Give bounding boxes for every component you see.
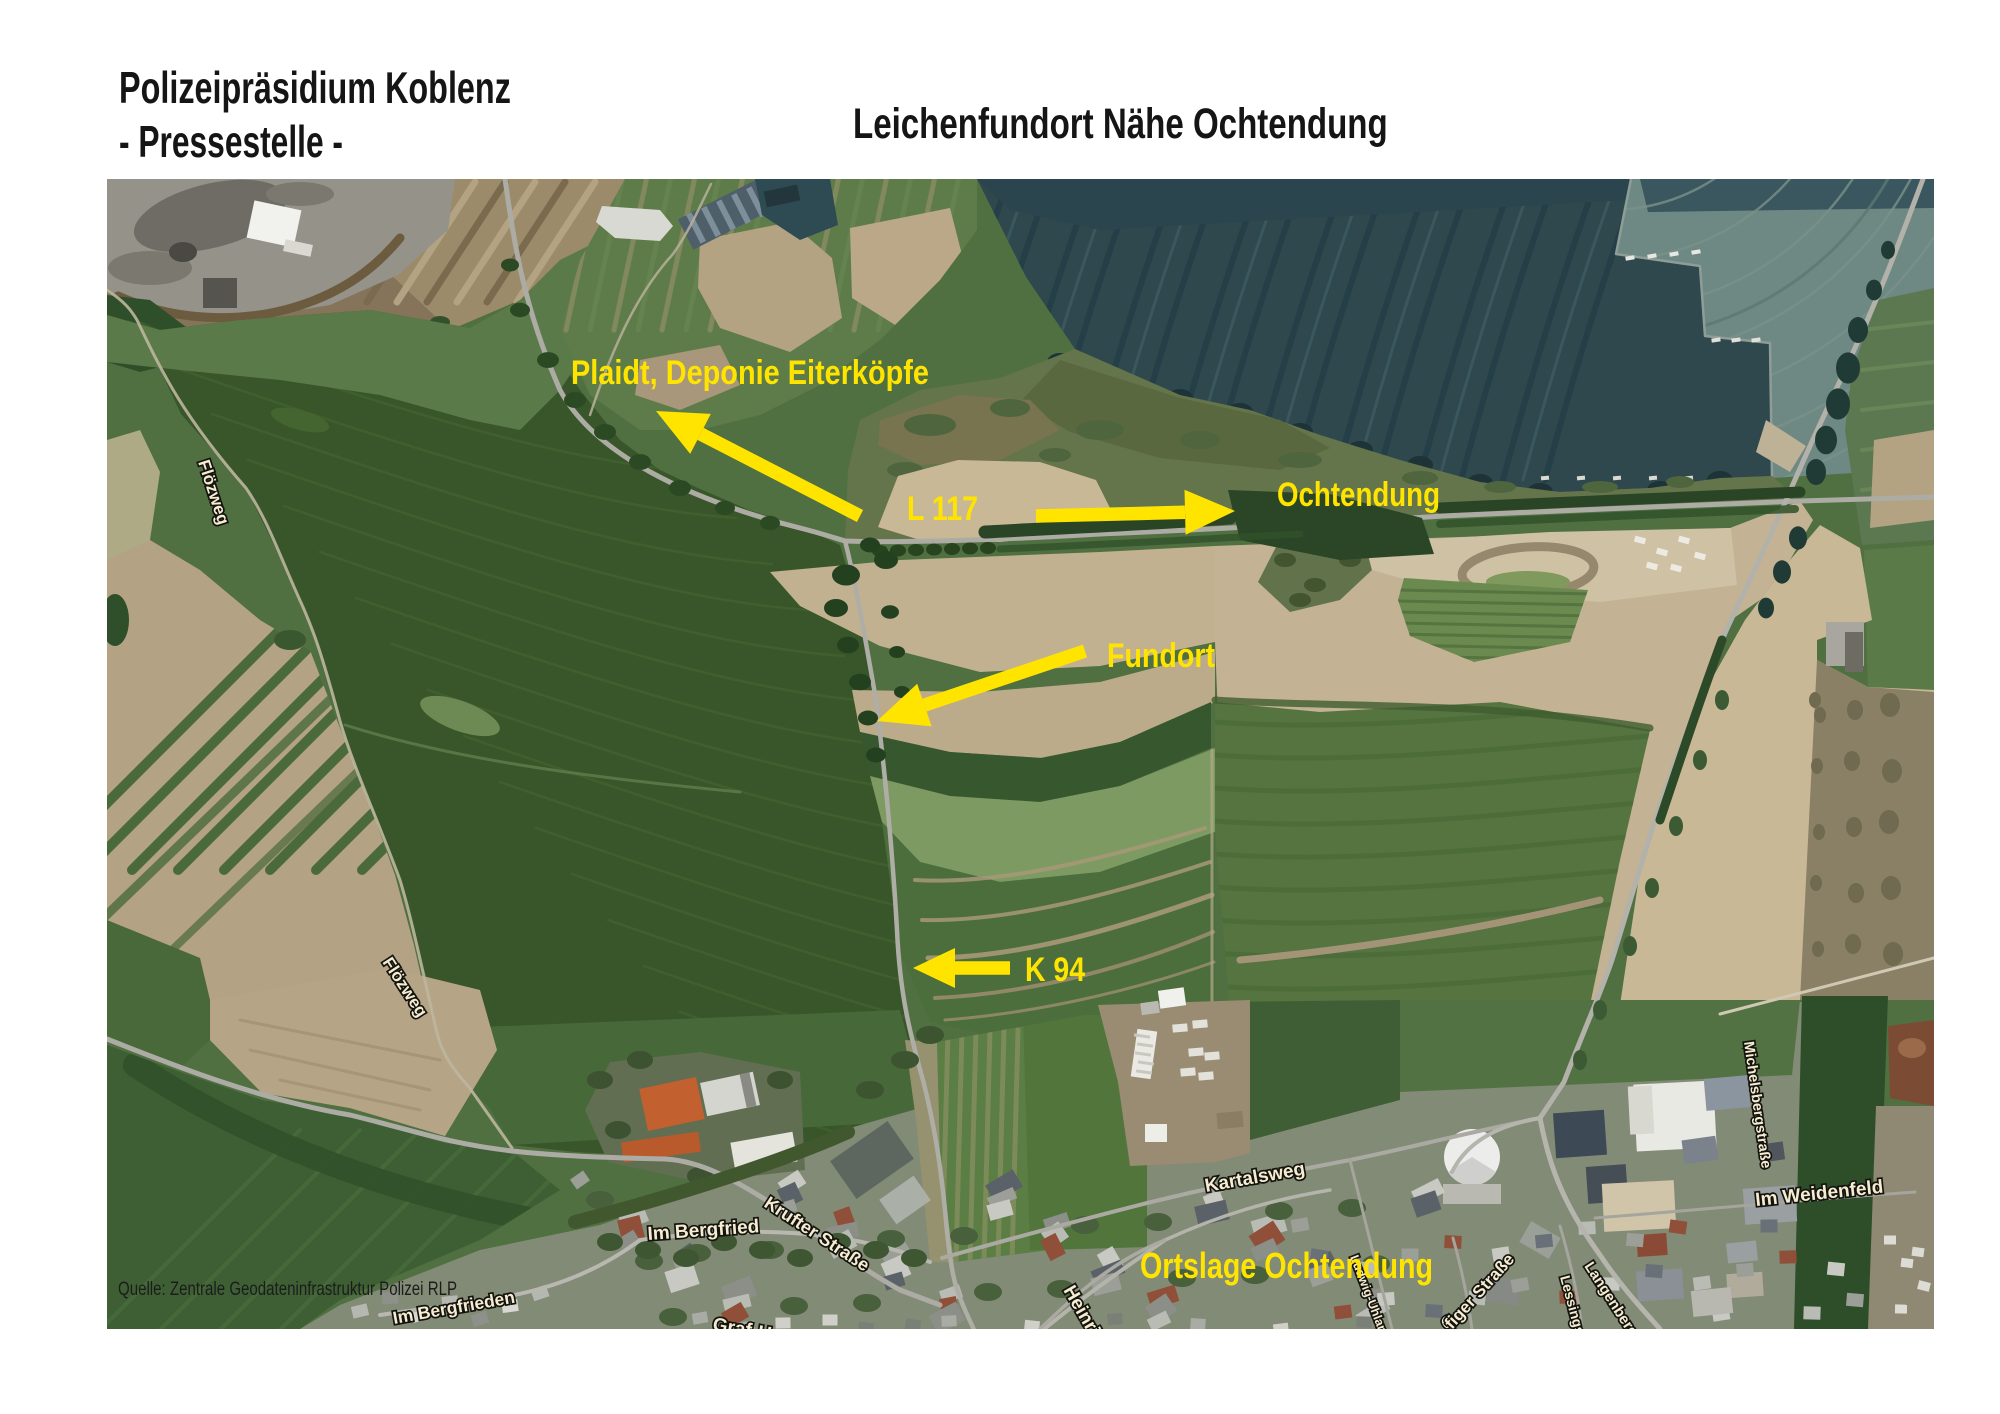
svg-text:L 117: L 117 [907,490,978,528]
svg-text:Plaidt, Deponie Eiterköpfe: Plaidt, Deponie Eiterköpfe [571,354,929,392]
svg-text:Fundort: Fundort [1107,637,1215,675]
svg-text:K 94: K 94 [1025,951,1085,989]
svg-text:Ochtendung: Ochtendung [1277,476,1440,514]
svg-text:Ortslage Ochtendung: Ortslage Ochtendung [1140,1245,1433,1286]
svg-text:Quelle: Zentrale Geodateninfra: Quelle: Zentrale Geodateninfrastruktur P… [118,1278,457,1300]
